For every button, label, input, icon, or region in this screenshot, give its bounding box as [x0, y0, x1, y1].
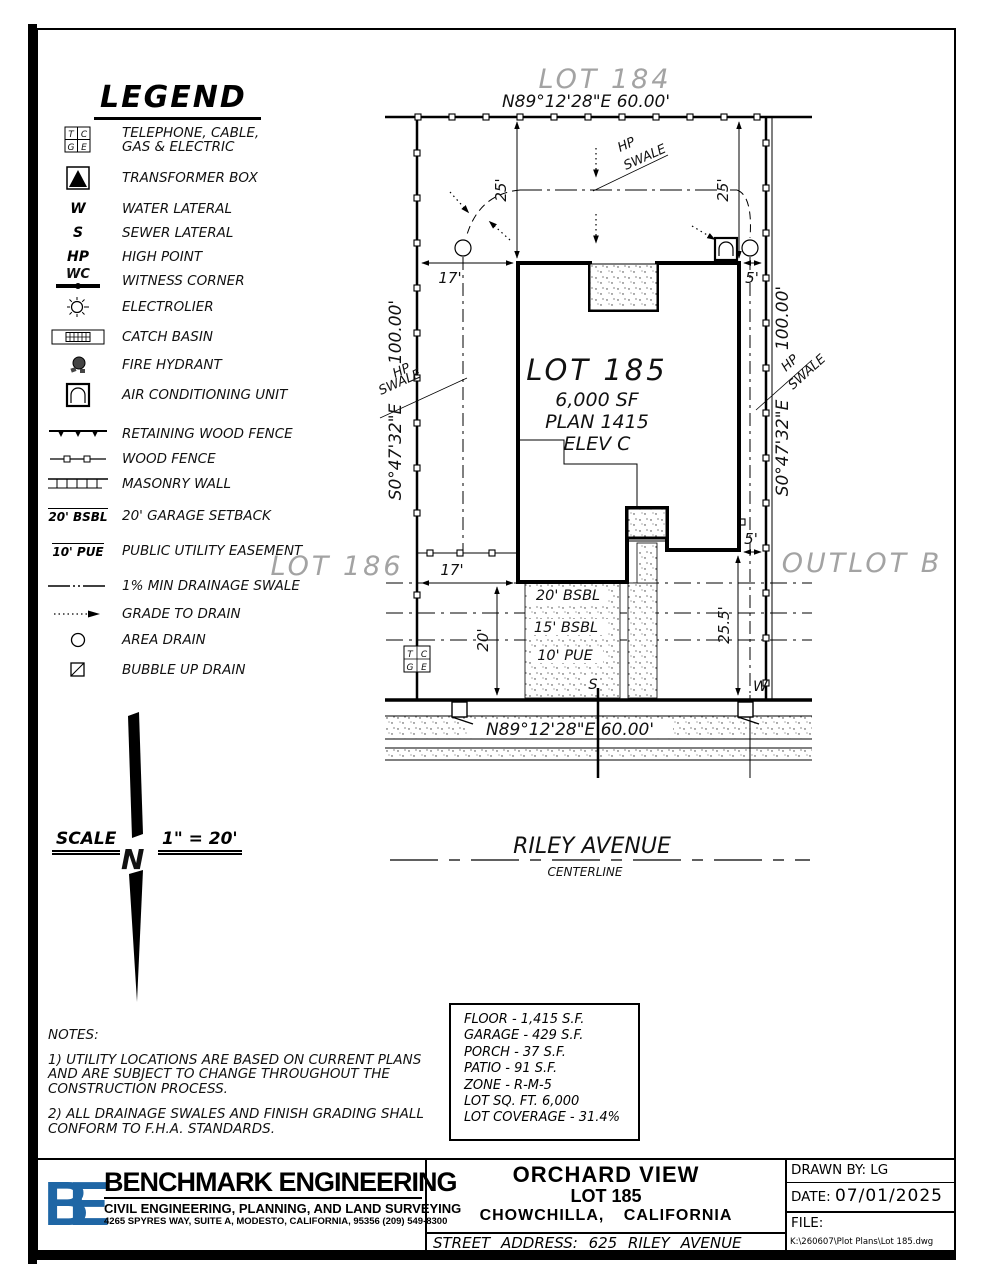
dim-17-top: 17' — [438, 269, 461, 287]
grade-arrows — [450, 148, 714, 242]
street-name: RILEY AVENUE — [513, 834, 671, 859]
drawn-by-row: DRAWN BY: LG — [787, 1160, 954, 1183]
legend-row-bsbl: 20' BSBL 20' GARAGE SETBACK — [46, 504, 271, 528]
table-row: ZONE - R-M-5 — [464, 1078, 638, 1094]
svg-text:20' BSBL: 20' BSBL — [536, 588, 600, 604]
scale-label: SCALE — [52, 829, 120, 855]
project-lot: LOT 185 — [427, 1186, 785, 1206]
legend-label: TELEPHONE, CABLE,GAS & ELECTRIC — [122, 126, 259, 154]
title-block-meta: DRAWN BY: LG DATE: 07/01/2025 FILE: K:\2… — [787, 1160, 954, 1254]
retaining-wood-fence-icon — [46, 426, 110, 442]
side-length-right: 100.00' — [773, 286, 793, 350]
date-row: DATE: 07/01/2025 — [787, 1183, 954, 1213]
dim-25-left: 25' — [492, 178, 510, 201]
area-drain-icon — [46, 631, 110, 649]
title-block: BE BENCHMARK ENGINEERING CIVIL ENGINEERI… — [36, 1158, 954, 1254]
svg-text:G: G — [68, 143, 75, 153]
title-block-project: ORCHARD VIEW LOT 185 CHOWCHILLA, CALIFOR… — [427, 1160, 787, 1254]
side-bearing-left: S0°47'32"E — [386, 403, 406, 500]
electrolier-icon — [46, 295, 110, 319]
lot-185-plan: PLAN 1415 — [545, 411, 649, 433]
dim-5-top: 5' — [745, 269, 759, 287]
lot-185-elev: ELEV C — [564, 433, 632, 455]
north-arrow: N — [121, 712, 144, 1002]
area-drain-right — [742, 240, 758, 256]
svg-text:C: C — [81, 130, 88, 140]
fire-hydrant-icon — [46, 354, 110, 376]
table-row: GARAGE - 429 S.F. — [464, 1028, 638, 1044]
legend-row-witness: WC WITNESS CORNER — [46, 266, 245, 296]
ac-unit-icon — [46, 382, 110, 408]
table-row: PATIO - 91 S.F. — [464, 1061, 638, 1077]
centerline-label: CENTERLINE — [548, 865, 623, 879]
porch-hatch — [590, 264, 657, 310]
dim-25-5: 25.5' — [715, 606, 733, 644]
bearing-street: N89°12'28"E 60.00' — [486, 720, 654, 740]
dim-25-right: 25' — [714, 178, 732, 201]
legend-row-swale: 1% MIN DRAINAGE SWALE — [46, 574, 300, 598]
patio-hatch — [627, 508, 667, 538]
walkway-upper-hatch — [637, 543, 657, 583]
file-label: FILE: — [791, 1215, 823, 1231]
svg-text:WC: WC — [66, 267, 90, 282]
svg-text:E: E — [421, 663, 427, 673]
legend-row-tcge: TC GE TELEPHONE, CABLE,GAS & ELECTRIC — [46, 124, 259, 156]
side-length-left: 100.00' — [386, 300, 406, 364]
date-label: DATE: — [791, 1189, 831, 1205]
company-name: BENCHMARK ENGINEERING — [104, 1168, 422, 1199]
masonry-wall-icon — [46, 476, 110, 492]
transformer-box-icon — [46, 166, 110, 190]
legend-row-water: W WATER LATERAL — [46, 197, 232, 221]
ac-unit — [715, 238, 737, 260]
title-block-company: BE BENCHMARK ENGINEERING CIVIL ENGINEERI… — [36, 1160, 427, 1254]
table-row: LOT SQ. FT. 6,000 — [464, 1094, 638, 1110]
svg-text:HP: HP — [616, 135, 638, 156]
legend-row-areadrain: AREA DRAIN — [46, 628, 206, 652]
scale-value: 1" = 20' — [158, 829, 242, 855]
walkway-hatch — [628, 583, 657, 698]
street-address-row: STREET ADDRESS: 625 RILEY AVENUE — [427, 1232, 785, 1254]
lot-184-label: LOT 184 — [538, 64, 671, 95]
witness-corner-icon: WC — [46, 266, 110, 296]
file-path: K:\260607\Plot Plans\Lot 185.dwg — [790, 1237, 933, 1247]
legend-row-masonry: MASONRY WALL — [46, 472, 231, 496]
svg-text:G: G — [407, 663, 414, 673]
project-name: ORCHARD VIEW — [427, 1163, 785, 1186]
svg-text:C: C — [421, 650, 428, 660]
legend-row-electrolier: ELECTROLIER — [46, 295, 214, 319]
notes: NOTES: 1) UTILITY LOCATIONS ARE BASED ON… — [48, 1028, 424, 1136]
company-address: 4265 SPYRES WAY, SUITE A, MODESTO, CALIF… — [104, 1216, 422, 1227]
garage-setback-symbol: 20' BSBL — [46, 508, 110, 524]
legend-row-wood-fence: WOOD FENCE — [46, 447, 216, 471]
notes-title: NOTES: — [48, 1028, 424, 1043]
file-row: FILE: K:\260607\Plot Plans\Lot 185.dwg — [787, 1213, 954, 1254]
company-tagline: CIVIL ENGINEERING, PLANNING, AND LAND SU… — [104, 1201, 422, 1216]
be-logo: BE — [44, 1176, 90, 1234]
date-value: 07/01/2025 — [835, 1186, 943, 1206]
svg-text:E: E — [81, 143, 87, 153]
legend-title: LEGEND — [94, 80, 261, 120]
legend-row-sewer: S SEWER LATERAL — [46, 221, 233, 245]
pue-symbol: 10' PUE — [46, 543, 110, 559]
tcge-box-plot: T C G E — [404, 646, 430, 673]
water-symbol: W — [46, 201, 110, 217]
legend-row-bubble: BUBBLE UP DRAIN — [46, 658, 245, 682]
table-row: FLOOR - 1,415 S.F. — [464, 1012, 638, 1028]
legend-row-pue: 10' PUE PUBLIC UTILITY EASEMENT — [46, 539, 302, 563]
svg-text:10' PUE: 10' PUE — [537, 648, 593, 664]
lot-185-label: LOT 185 — [526, 353, 667, 387]
bearing-top: N89°12'28"E 60.00' — [502, 92, 670, 112]
dim-20-drive: 20' — [474, 628, 492, 651]
legend-row-hydrant: FIRE HYDRANT — [46, 353, 222, 377]
legend-row-retaining-fence: RETAINING WOOD FENCE — [46, 422, 293, 446]
outlot-b-label: OUTLOT B — [782, 548, 943, 579]
lot-185-sf: 6,000 SF — [555, 389, 639, 411]
drainage-swale-icon — [46, 581, 110, 591]
catch-basin-icon — [46, 327, 110, 347]
wood-fence-icon — [46, 452, 110, 466]
tcge-icon: TC GE — [46, 126, 110, 154]
area-summary-table: FLOOR - 1,415 S.F. GARAGE - 429 S.F. POR… — [449, 1003, 640, 1141]
dim-17-bottom: 17' — [440, 561, 463, 579]
bubble-up-drain-icon — [46, 661, 110, 679]
dim-5-mid: 5' — [744, 530, 758, 548]
sewer-symbol: S — [46, 225, 110, 241]
legend-row-transformer: TRANSFORMER BOX — [46, 166, 258, 190]
legend: LEGEND TC GE TELEPHONE, CABLE,GAS & ELEC… — [46, 80, 356, 700]
side-bearing-right: S0°47'32"E — [773, 399, 793, 496]
project-city: CHOWCHILLA, CALIFORNIA — [427, 1206, 785, 1226]
svg-text:W: W — [753, 679, 768, 695]
highpoint-symbol: HP — [46, 249, 110, 265]
svg-text:15' BSBL: 15' BSBL — [534, 620, 598, 636]
area-drain-left — [455, 240, 471, 256]
legend-row-ac: AIR CONDITIONING UNIT — [46, 381, 287, 409]
legend-row-grade: GRADE TO DRAIN — [46, 602, 241, 626]
grade-to-drain-icon — [46, 608, 110, 620]
table-row: PORCH - 37 S.F. — [464, 1045, 638, 1061]
table-row: LOT COVERAGE - 31.4% — [464, 1110, 638, 1126]
svg-text:S: S — [588, 677, 597, 693]
legend-row-catchbasin: CATCH BASIN — [46, 325, 213, 349]
plan-sheet: T C G E 25' 25' 17' 5' 17' 5' 20' 25.5' … — [0, 0, 984, 1279]
